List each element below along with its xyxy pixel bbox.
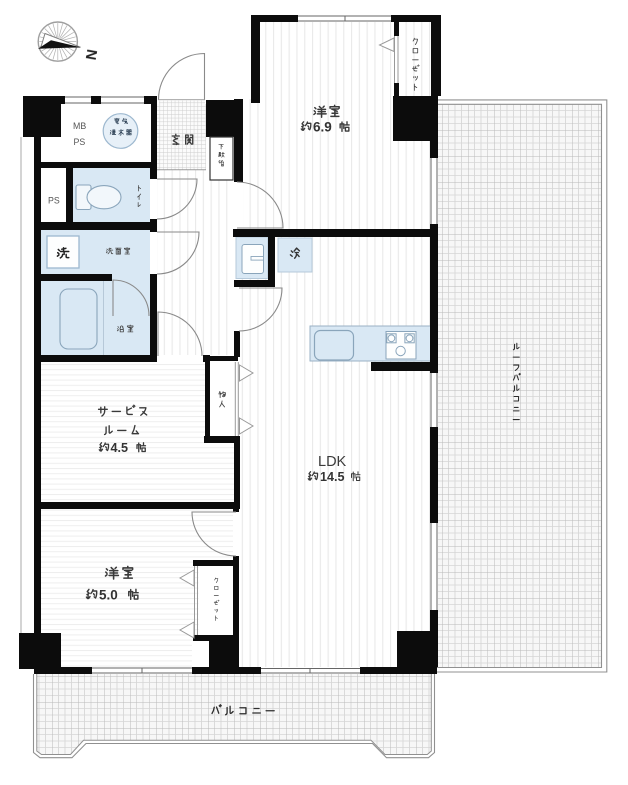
svg-text:5.0: 5.0 [99, 588, 118, 603]
svg-text:6.9: 6.9 [313, 120, 332, 135]
svg-text:MB: MB [73, 121, 86, 131]
svg-text:LDK: LDK [318, 454, 347, 470]
svg-text:PS: PS [74, 137, 86, 147]
svg-text:4.5: 4.5 [111, 441, 129, 455]
svg-text:14.5: 14.5 [320, 470, 345, 484]
svg-text:PS: PS [48, 196, 60, 206]
